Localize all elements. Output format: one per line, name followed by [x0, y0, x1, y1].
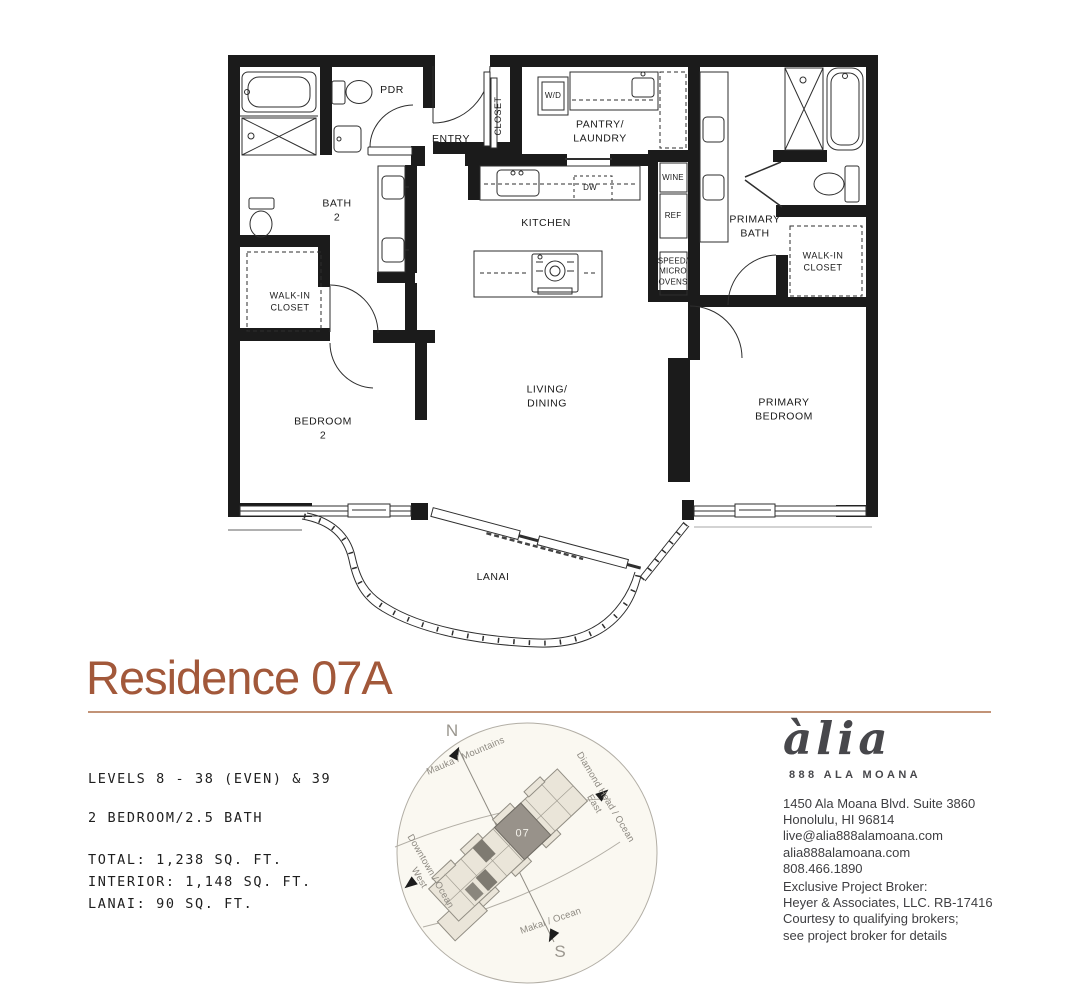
door-arc-walkin-left: [330, 285, 378, 333]
room-label-bath2: BATH 2: [322, 197, 351, 224]
flyer-page: 07 PDR ENTRY CLOSET W/D PANTRY/ LAUNDRY …: [0, 0, 1080, 989]
contact-address: 1450 Ala Moana Blvd. Suite 3860 Honolulu…: [783, 796, 975, 877]
door-arc-pdr: [370, 105, 413, 147]
door-arc-entry: [433, 66, 490, 123]
residence-specs: LEVELS 8 - 38 (EVEN) & 39 2 BEDROOM/2.5 …: [88, 771, 331, 915]
spec-levels: LEVELS 8 - 38 (EVEN) & 39: [88, 771, 331, 787]
tub-primary: [827, 68, 863, 150]
room-label-primary-bedroom: PRIMARY BEDROOM: [755, 396, 813, 423]
room-label-lanai: LANAI: [477, 571, 510, 585]
toilet-pdr: [332, 81, 345, 104]
room-label-wd: W/D: [545, 91, 561, 101]
sliding-glass-living: [430, 508, 642, 574]
alia-logo: àlia: [783, 712, 892, 765]
room-label-wine: WINE: [662, 173, 684, 183]
compass-north-label: N: [446, 721, 458, 741]
room-label-pantry-laundry: PANTRY/ LAUNDRY: [573, 118, 627, 145]
room-label-kitchen: KITCHEN: [521, 217, 571, 231]
spec-config: 2 BEDROOM/2.5 BATH: [88, 810, 331, 826]
room-label-ovens: SPEED/ MICRO OVENS: [658, 256, 689, 287]
window-band-primary: [694, 504, 872, 527]
room-label-walkin-left: WALK-IN CLOSET: [270, 290, 311, 313]
room-label-entry: ENTRY: [432, 133, 470, 147]
tub-bath2: [242, 72, 316, 112]
tall-cabinets: [660, 72, 686, 148]
room-label-walkin-right: WALK-IN CLOSET: [803, 250, 844, 273]
room-label-closet: CLOSET: [493, 96, 505, 135]
room-label-bedroom2: BEDROOM 2: [294, 415, 352, 442]
unit-07-label: 07: [516, 827, 530, 839]
sink-pdr: [334, 126, 361, 152]
page-title: Residence 07A: [86, 650, 392, 705]
spec-areas: TOTAL: 1,238 SQ. FT. INTERIOR: 1,148 SQ.…: [88, 849, 331, 915]
room-label-dw: DW: [583, 183, 597, 193]
logo-tagline: 888 ALA MOANA: [789, 769, 921, 781]
vanity-primary: [700, 72, 728, 242]
room-label-living-dining: LIVING/ DINING: [527, 383, 568, 410]
toilet-bath2: [249, 198, 274, 209]
door-angled-primary-bath: [745, 162, 782, 207]
door-arc-bedroom2: [330, 343, 373, 388]
room-label-ref: REF: [665, 211, 682, 221]
compass-diagram: 07: [395, 723, 657, 983]
toilet-primary: [845, 166, 859, 202]
window-band-bedroom2: [240, 504, 411, 517]
room-label-pdr: PDR: [380, 84, 404, 98]
compass-south-label: S: [554, 942, 565, 962]
broker-notice: Exclusive Project Broker: Heyer & Associ…: [783, 879, 993, 944]
room-label-primary-bath: PRIMARY BATH: [729, 213, 780, 240]
